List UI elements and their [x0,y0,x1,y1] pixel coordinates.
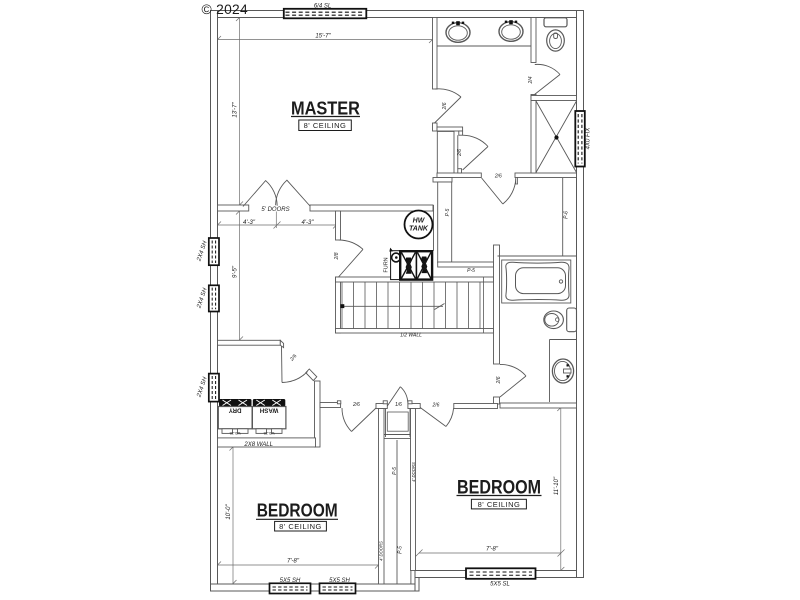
svg-text:P-5: P-5 [398,546,404,554]
svg-text:2/6: 2/6 [457,149,463,157]
svg-text:8' CEILING: 8' CEILING [304,121,347,130]
svg-text:4' DOORS: 4' DOORS [379,541,384,561]
svg-text:DRY: DRY [228,407,242,414]
svg-text:15'-7": 15'-7" [315,34,331,40]
svg-text:P-5: P-5 [392,467,398,475]
svg-text:2/6: 2/6 [494,174,502,180]
svg-text:4'-3": 4'-3" [243,220,256,226]
svg-text:2/6: 2/6 [496,376,502,384]
svg-text:WASH: WASH [259,407,278,414]
svg-text:8' CEILING: 8' CEILING [478,500,521,509]
svg-text:4'-3": 4'-3" [302,220,315,226]
svg-text:13'-7": 13'-7" [233,101,239,117]
svg-text:7'-8": 7'-8" [486,547,499,553]
svg-text:HW: HW [413,218,426,225]
svg-text:9'-5": 9'-5" [233,265,239,278]
svg-text:MASTER: MASTER [291,98,360,119]
svg-text:WD-2B: WD-2B [263,431,275,435]
svg-text:2/8: 2/8 [334,252,340,260]
svg-text:5X5 SH: 5X5 SH [329,578,350,584]
svg-text:4' DOORS: 4' DOORS [411,462,416,482]
svg-text:AC-2: AC-2 [422,260,428,270]
svg-text:1/6: 1/6 [395,402,402,408]
svg-text:BEDROOM: BEDROOM [257,501,338,521]
svg-text:2/6: 2/6 [352,402,360,408]
svg-text:1/2 WALL: 1/2 WALL [400,333,422,339]
svg-text:50-38: 50-38 [407,260,413,271]
svg-text:11'-10": 11'-10" [554,476,560,495]
svg-text:2/4: 2/4 [528,76,534,84]
svg-text:4X0 FIX: 4X0 FIX [586,127,592,150]
svg-text:5X5 SH: 5X5 SH [280,578,301,584]
svg-text:P-5: P-5 [467,268,475,274]
svg-text:8' CEILING: 8' CEILING [279,522,322,531]
svg-text:10'-0": 10'-0" [226,503,232,519]
svg-text:6/4 SL: 6/4 SL [314,4,331,10]
svg-text:5X5 SL: 5X5 SL [490,582,510,588]
svg-text:5' DOORS: 5' DOORS [261,207,289,213]
svg-text:© 2024: © 2024 [202,2,249,17]
svg-text:P-5: P-5 [445,208,451,216]
svg-text:FURN: FURN [384,257,390,272]
svg-text:TANK: TANK [409,226,429,233]
svg-text:7'-8": 7'-8" [287,559,300,565]
svg-text:2/6: 2/6 [432,402,440,408]
svg-text:2/6: 2/6 [442,102,448,110]
svg-text:WD-2B: WD-2B [229,431,241,435]
svg-text:P-6: P-6 [564,211,570,219]
svg-text:2X8 WALL: 2X8 WALL [243,442,273,448]
